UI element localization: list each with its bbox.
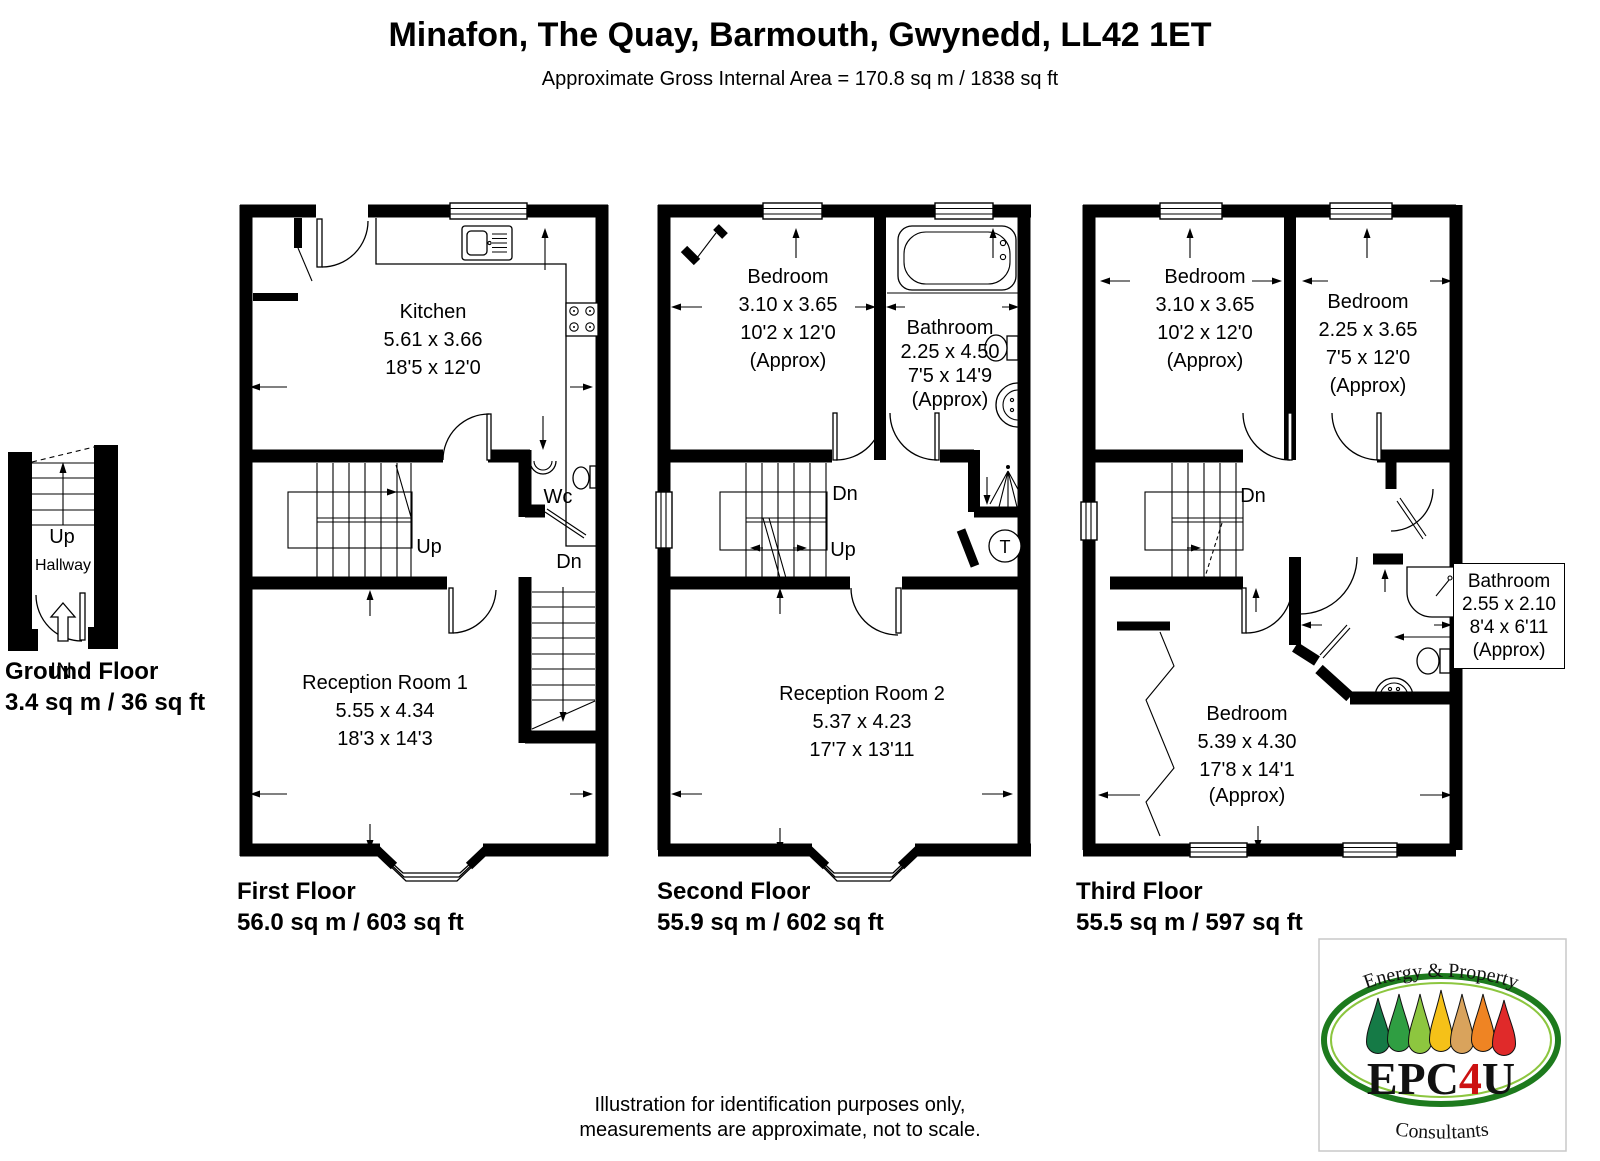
callout-room-name: Bathroom — [1456, 570, 1562, 593]
svg-text:Kitchen: Kitchen — [400, 301, 467, 323]
first-dn-label: Dn — [556, 551, 582, 573]
bathroom-callout: Bathroom 2.55 x 2.10 8'4 x 6'11 (Approx) — [1453, 563, 1565, 669]
svg-text:3.10 x 3.65: 3.10 x 3.65 — [739, 294, 838, 316]
page-title: Minafon, The Quay, Barmouth, Gwynedd, LL… — [100, 16, 1500, 55]
ground-up-label: Up — [49, 526, 75, 548]
svg-text:5.39 x 4.30: 5.39 x 4.30 — [1198, 731, 1297, 753]
first-floor-label: First Floor 56.0 sq m / 603 sq ft — [237, 876, 464, 938]
second-floor-label: Second Floor 55.9 sq m / 602 sq ft — [657, 876, 884, 938]
third-floor-label: Third Floor 55.5 sq m / 597 sq ft — [1076, 876, 1303, 938]
kitchen-sink-icon — [462, 226, 512, 260]
wardrobe-doors — [1146, 632, 1174, 836]
first-top-window — [450, 203, 527, 219]
svg-text:10'2 x 12'0: 10'2 x 12'0 — [740, 322, 836, 344]
callout-metric: 2.55 x 2.10 — [1456, 593, 1562, 616]
svg-text:17'8 x 14'1: 17'8 x 14'1 — [1199, 759, 1295, 781]
first-floor-plan: Kitchen 5.61 x 3.66 18'5 x 12'0 Wc Up Dn… — [230, 198, 620, 888]
svg-text:2.25 x 4.50: 2.25 x 4.50 — [901, 341, 1000, 363]
svg-text:(Approx): (Approx) — [1209, 785, 1286, 807]
bath-icon — [887, 226, 1018, 293]
svg-text:(Approx): (Approx) — [1167, 350, 1244, 372]
disclaimer: Illustration for identification purposes… — [430, 1093, 1130, 1143]
entrance-door — [36, 593, 85, 641]
room-label-bedroom3f-3: Bedroom 5.39 x 4.30 17'8 x 14'1 (Approx) — [1198, 703, 1297, 807]
svg-text:T: T — [1000, 537, 1011, 557]
svg-text:7'5 x 12'0: 7'5 x 12'0 — [1326, 347, 1410, 369]
logo-center-text: EPC4U — [1367, 1053, 1515, 1104]
second-basin-icon — [996, 383, 1018, 427]
second-left-window — [656, 492, 672, 548]
first-dn-stairs — [532, 587, 595, 729]
svg-text:Bedroom: Bedroom — [1327, 291, 1408, 313]
svg-text:5.37 x 4.23: 5.37 x 4.23 — [813, 711, 912, 733]
svg-text:18'5 x 12'0: 18'5 x 12'0 — [385, 357, 481, 379]
second-dn-label: Dn — [832, 483, 858, 505]
hob-icon — [566, 303, 598, 336]
svg-text:(Approx): (Approx) — [750, 350, 827, 372]
svg-text:Bathroom: Bathroom — [907, 317, 994, 339]
room-label-bedroom3f-2: Bedroom 2.25 x 3.65 7'5 x 12'0 (Approx) — [1319, 291, 1418, 397]
hallway-label: Hallway — [35, 557, 91, 574]
third-dn-label: Dn — [1240, 485, 1266, 507]
third-floor-plan: Bedroom 3.10 x 3.65 10'2 x 12'0 (Approx)… — [1075, 198, 1470, 898]
room-label-bedroom2f: Bedroom 3.10 x 3.65 10'2 x 12'0 (Approx) — [739, 266, 838, 372]
svg-text:(Approx): (Approx) — [912, 389, 989, 411]
svg-text:5.55 x 4.34: 5.55 x 4.34 — [336, 700, 435, 722]
svg-text:5.61 x 3.66: 5.61 x 3.66 — [384, 329, 483, 351]
svg-text:Reception Room 1: Reception Room 1 — [302, 672, 468, 694]
svg-text:10'2 x 12'0: 10'2 x 12'0 — [1157, 322, 1253, 344]
svg-text:7'5 x 14'9: 7'5 x 14'9 — [908, 365, 992, 387]
third-left-window — [1081, 502, 1097, 540]
third-toilet-icon — [1417, 648, 1450, 674]
svg-text:Bedroom: Bedroom — [1164, 266, 1245, 288]
svg-text:Bedroom: Bedroom — [1206, 703, 1287, 725]
room-label-bedroom3f-1: Bedroom 3.10 x 3.65 10'2 x 12'0 (Approx) — [1156, 266, 1255, 372]
room-label-reception1: Reception Room 1 5.55 x 4.34 18'3 x 14'3 — [302, 672, 468, 750]
first-up-stairs — [288, 463, 412, 578]
second-stairs — [720, 463, 827, 578]
third-stairs — [1145, 463, 1243, 578]
svg-text:3.10 x 3.65: 3.10 x 3.65 — [1156, 294, 1255, 316]
second-walls — [658, 205, 1031, 866]
callout-approx: (Approx) — [1456, 639, 1562, 662]
second-floor-plan: T Bedroom 3.10 x 3.65 10'2 x 12'0 (Appro… — [650, 198, 1045, 898]
epc4u-logo: Energy & Property EPC4U Consultants — [1318, 938, 1568, 1153]
svg-text:18'3 x 14'3: 18'3 x 14'3 — [337, 728, 433, 750]
page-subtitle: Approximate Gross Internal Area = 170.8 … — [100, 68, 1500, 91]
second-up-label: Up — [830, 539, 856, 561]
svg-text:Reception Room 2: Reception Room 2 — [779, 683, 945, 705]
tank-icon: T — [989, 530, 1021, 562]
callout-imperial: 8'4 x 6'11 — [1456, 616, 1562, 639]
room-label-bathroom2f: Bathroom 2.25 x 4.50 7'5 x 14'9 (Approx) — [901, 317, 1000, 411]
shower-tray-icon — [1407, 567, 1457, 617]
svg-text:Bedroom: Bedroom — [747, 266, 828, 288]
ground-floor-label: Ground Floor 3.4 sq m / 36 sq ft — [5, 656, 205, 718]
wc-toilet-icon — [573, 466, 596, 489]
logo-bottom-text: Consultants — [1394, 1118, 1490, 1143]
room-label-wc: Wc — [544, 486, 573, 508]
in-arrow-icon — [51, 603, 75, 641]
room-label-kitchen: Kitchen 5.61 x 3.66 18'5 x 12'0 — [384, 301, 483, 379]
wc-sink-icon — [530, 461, 556, 474]
svg-text:2.25 x 3.65: 2.25 x 3.65 — [1319, 319, 1418, 341]
svg-text:17'7 x 13'11: 17'7 x 13'11 — [809, 739, 914, 761]
first-up-label: Up — [416, 536, 442, 558]
room-label-reception2: Reception Room 2 5.37 x 4.23 17'7 x 13'1… — [779, 683, 945, 761]
svg-text:(Approx): (Approx) — [1330, 375, 1407, 397]
floorplan-page: Minafon, The Quay, Barmouth, Gwynedd, LL… — [0, 0, 1600, 1161]
ground-stairs — [32, 447, 94, 525]
